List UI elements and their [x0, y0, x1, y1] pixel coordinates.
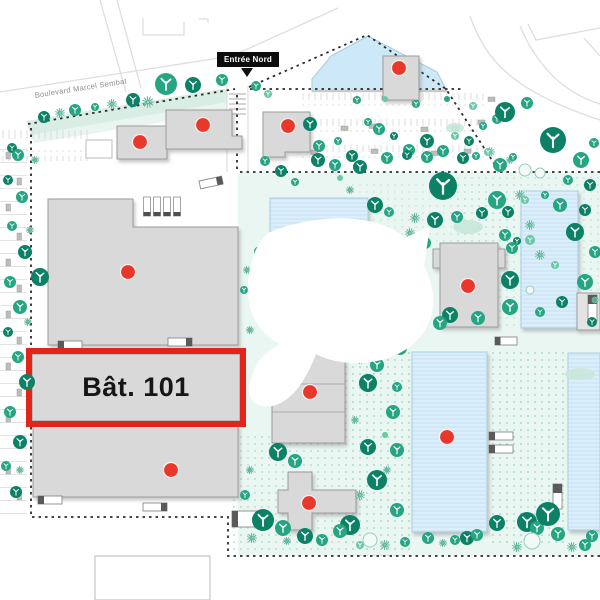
tree-icon: [329, 159, 341, 171]
tree-icon: [579, 539, 591, 551]
tree-icon: [509, 153, 517, 161]
tree-icon: [589, 138, 599, 148]
tree-icon: [551, 261, 559, 269]
tree-icon: [427, 212, 443, 228]
parked-car: [6, 363, 11, 370]
tree-icon: [155, 73, 177, 95]
tree-icon: [540, 127, 566, 153]
tree-icon: [502, 206, 514, 218]
tree-icon: [4, 406, 16, 418]
tree-icon: [313, 140, 325, 152]
tree-icon: [12, 351, 24, 363]
tree-icon: [69, 104, 81, 116]
tree-icon: [356, 541, 364, 549]
tree-icon: [12, 149, 24, 161]
tree-icon: [412, 100, 420, 108]
parking-row: [0, 128, 88, 139]
tree-icon: [346, 150, 358, 162]
tree-icon: [392, 382, 402, 392]
tree-icon: [359, 374, 377, 392]
truck-icon: [489, 445, 513, 453]
entrance-arrow-icon: [241, 68, 253, 77]
parked-car: [6, 152, 11, 159]
truck-icon: [143, 503, 167, 511]
tree-icon: [535, 307, 545, 317]
tree-icon: [451, 132, 459, 140]
tree-icon: [450, 535, 460, 545]
tree-icon: [337, 175, 343, 181]
road-line: [584, 38, 600, 56]
loading-dock-door: [144, 212, 151, 216]
tree-icon: [573, 152, 589, 168]
tree-icon: [13, 300, 27, 314]
tree-icon: [420, 134, 434, 148]
tree-icon: [390, 132, 398, 140]
tree-outline-icon: [363, 533, 377, 547]
tree-icon: [126, 93, 140, 107]
tree-icon: [421, 151, 433, 163]
building-location-marker[interactable]: [164, 463, 179, 478]
tree-icon: [3, 175, 13, 185]
tree-icon: [444, 96, 450, 102]
parked-car: [6, 311, 11, 318]
loading-dock-door: [164, 212, 171, 216]
tree-icon: [38, 111, 50, 123]
tree-icon: [476, 207, 488, 219]
outlined-structure: [95, 556, 210, 600]
truck-icon: [489, 432, 513, 440]
parked-car: [6, 204, 11, 211]
parked-car: [17, 285, 22, 292]
tree-icon: [479, 122, 487, 130]
building-location-marker[interactable]: [440, 430, 455, 445]
tree-icon: [386, 405, 400, 419]
tree-icon: [422, 532, 434, 544]
tree-icon: [353, 160, 367, 174]
truck-icon: [58, 341, 82, 349]
tree-icon: [7, 221, 17, 231]
tree-icon: [18, 245, 32, 259]
parked-car: [17, 178, 22, 185]
road-line: [520, 26, 600, 104]
tree-icon: [91, 103, 99, 111]
tree-icon: [521, 196, 529, 204]
tree-icon: [13, 435, 27, 449]
tree-icon: [303, 117, 317, 131]
truck-icon: [199, 176, 223, 189]
tree-icon: [566, 223, 584, 241]
highlighted-building-label[interactable]: Bât. 101: [32, 372, 240, 403]
docks-layer: [144, 197, 181, 216]
tree-icon: [400, 537, 410, 547]
road-line: [199, 19, 208, 23]
tree-icon: [185, 77, 201, 93]
building-location-marker[interactable]: [133, 135, 148, 150]
bush-blob: [565, 368, 595, 380]
building-location-marker[interactable]: [392, 61, 407, 76]
tree-outline-icon: [524, 533, 540, 549]
tree-outline-icon: [526, 286, 534, 294]
warehouse-building: [521, 191, 578, 328]
tree-icon: [525, 235, 535, 245]
tree-icon: [429, 172, 457, 200]
outlined-structure: [86, 140, 112, 158]
building-location-marker[interactable]: [196, 118, 211, 133]
road-line: [528, 24, 600, 40]
tree-icon: [269, 443, 287, 461]
tree-icon: [488, 191, 506, 209]
parked-car: [371, 149, 378, 154]
tree-icon: [382, 432, 388, 438]
tree-outline-icon: [535, 168, 545, 178]
tree-icon: [216, 74, 228, 86]
tree-icon: [3, 327, 13, 337]
tree-icon: [10, 486, 22, 498]
tree-icon: [288, 454, 302, 468]
tree-icon: [499, 229, 511, 241]
tree-icon: [334, 137, 342, 145]
building-footprint: [48, 199, 238, 345]
tree-icon: [364, 118, 372, 126]
tree-icon: [16, 191, 28, 203]
tree-icon: [31, 268, 49, 286]
tree-icon: [495, 102, 515, 122]
building-location-marker[interactable]: [302, 496, 317, 511]
tree-icon: [367, 470, 387, 490]
tree-icon: [437, 145, 449, 157]
tree-icon: [260, 156, 270, 166]
bush-blob: [446, 123, 464, 133]
tree-icon: [451, 211, 463, 223]
building-location-marker[interactable]: [461, 279, 476, 294]
tree-icon: [521, 97, 533, 109]
roads-layer: [0, 0, 600, 120]
tree-icon: [1, 461, 11, 471]
tree-icon: [556, 296, 568, 308]
building-location-marker[interactable]: [303, 385, 318, 400]
tree-icon: [577, 274, 593, 290]
tree-icon: [240, 490, 250, 500]
tree-icon: [297, 528, 313, 544]
parked-car: [17, 233, 22, 240]
tree-icon: [493, 158, 507, 172]
truck-icon: [495, 337, 517, 345]
tree-icon: [579, 204, 591, 216]
tree-icon: [501, 271, 519, 289]
tree-icon: [584, 179, 596, 191]
tree-icon: [333, 524, 347, 538]
tree-icon: [433, 316, 447, 330]
tree-icon: [464, 136, 474, 146]
parked-car: [17, 389, 22, 396]
tree-icon: [316, 534, 328, 546]
tree-icon: [390, 443, 404, 457]
tree-icon: [353, 96, 361, 104]
tree-icon: [373, 123, 385, 135]
tree-icon: [553, 198, 567, 212]
building-footprint: [33, 425, 238, 497]
tree-icon: [367, 197, 383, 213]
building-location-marker[interactable]: [121, 265, 136, 280]
road-line: [143, 18, 184, 35]
tree-icon: [551, 527, 565, 541]
parked-car: [488, 97, 495, 102]
shrub-starburst: [26, 226, 34, 234]
parked-car: [6, 259, 11, 266]
tree-icon: [275, 520, 291, 536]
parked-car: [421, 127, 428, 132]
tree-icon: [360, 439, 376, 455]
tree-icon: [457, 152, 469, 164]
tree-icon: [390, 503, 404, 517]
tree-icon: [484, 148, 492, 156]
truck-icon: [168, 338, 192, 346]
tree-icon: [489, 515, 505, 531]
tree-icon: [471, 311, 485, 325]
tree-icon: [472, 152, 480, 160]
tree-icon: [541, 191, 549, 199]
building-location-marker[interactable]: [281, 119, 296, 134]
parked-car: [341, 126, 348, 131]
site-map: Boulevard Marcel Sembat Entrée Nord Bât.…: [0, 0, 600, 600]
tree-icon: [402, 150, 412, 160]
tree-icon: [264, 90, 272, 98]
tree-icon: [563, 175, 573, 185]
tree-icon: [502, 299, 518, 315]
tree-icon: [382, 96, 388, 102]
tree-icon: [469, 102, 477, 110]
tree-icon: [506, 242, 518, 254]
tree-icon: [381, 152, 393, 164]
loading-dock-door: [154, 212, 161, 216]
tree-icon: [471, 529, 483, 541]
parked-car: [17, 337, 22, 344]
tree-icon: [275, 165, 287, 177]
tree-icon: [251, 81, 261, 91]
tree-icon: [252, 509, 274, 531]
tree-icon: [536, 502, 560, 526]
tree-icon: [291, 178, 299, 186]
tree-icon: [384, 207, 394, 217]
tree-icon: [240, 286, 248, 294]
tree-icon: [4, 276, 16, 288]
tree-icon: [587, 317, 597, 327]
north-entrance-label: Entrée Nord: [217, 52, 279, 67]
tree-icon: [311, 153, 325, 167]
truck-icon: [38, 496, 62, 504]
tree-outline-icon: [519, 164, 531, 176]
loading-dock-door: [174, 212, 181, 216]
